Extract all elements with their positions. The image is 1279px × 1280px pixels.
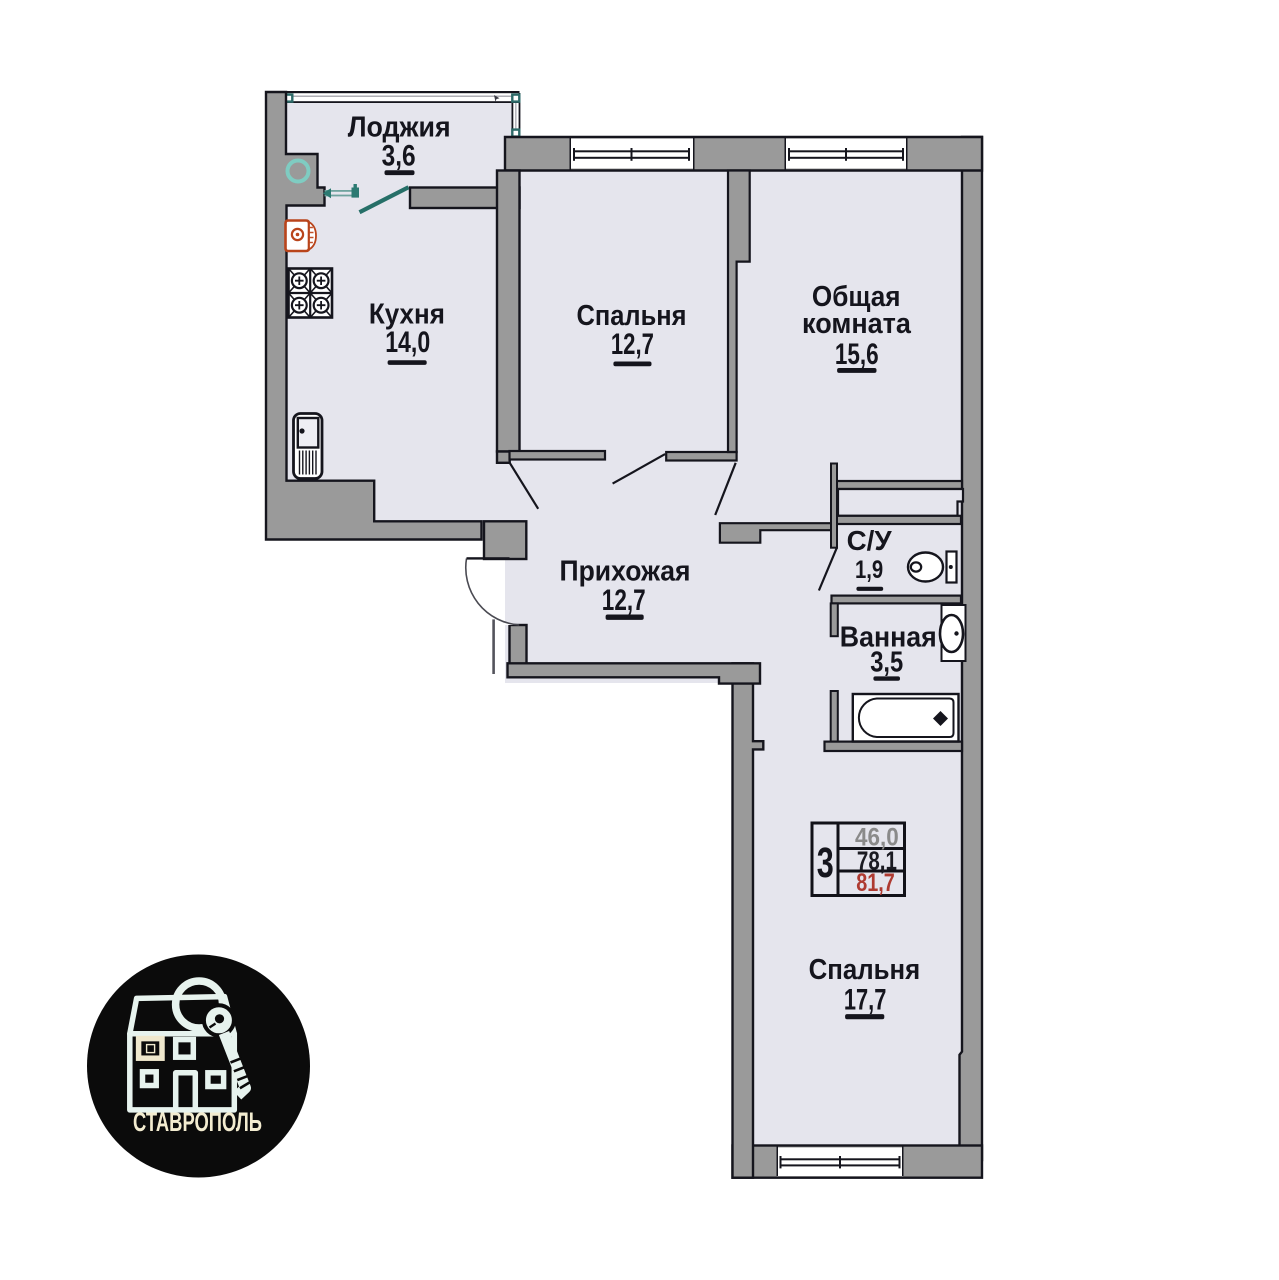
svg-text:14,0: 14,0 [385,326,430,359]
svg-text:17,7: 17,7 [844,983,887,1016]
svg-text:С/У: С/У [847,525,893,556]
svg-text:3,5: 3,5 [870,647,903,679]
svg-text:12,7: 12,7 [611,328,654,361]
svg-text:Спальня: Спальня [809,954,921,986]
svg-text:комната: комната [802,308,912,340]
svg-text:15,6: 15,6 [835,338,879,371]
svg-text:Лоджия: Лоджия [348,111,451,143]
svg-text:Прихожая: Прихожая [560,555,691,587]
svg-text:3,6: 3,6 [382,140,416,173]
svg-text:1,9: 1,9 [855,556,883,584]
svg-text:СТАВРОПОЛЬ: СТАВРОПОЛЬ [133,1107,262,1137]
svg-text:81,7: 81,7 [856,869,895,897]
svg-text:3: 3 [817,840,834,887]
svg-text:12,7: 12,7 [602,584,646,617]
